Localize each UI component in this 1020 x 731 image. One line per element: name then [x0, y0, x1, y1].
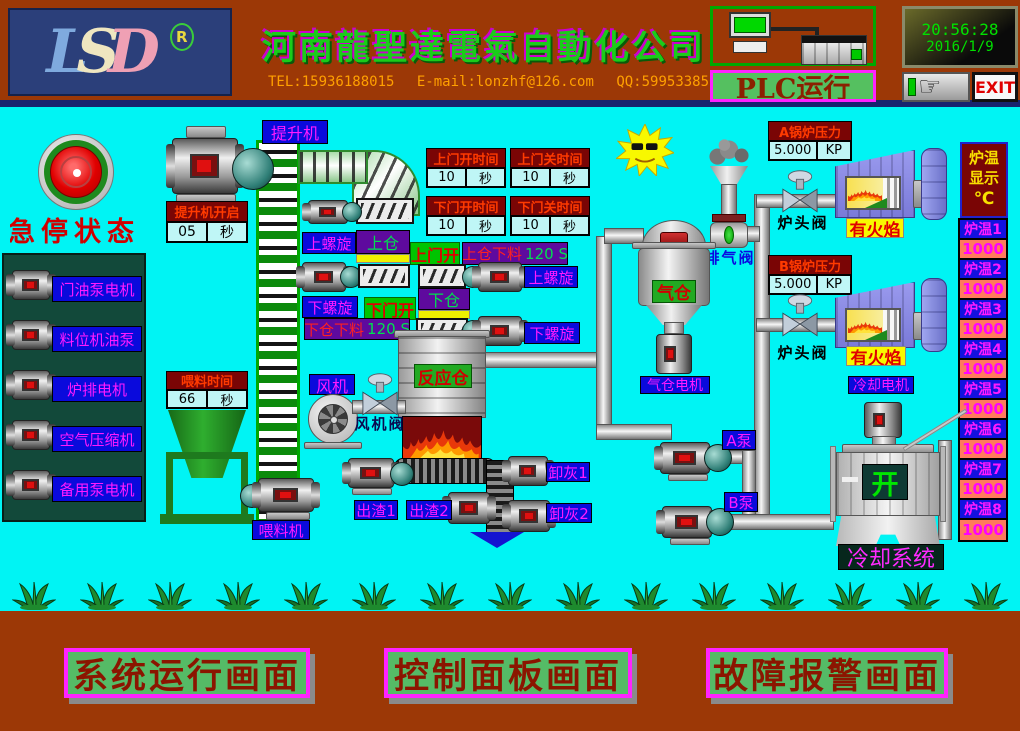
company-name: 河南龍聖達電氣自動化公司: [262, 20, 710, 66]
gas-bin-label: 气仓: [652, 280, 696, 303]
pump-b-base: [670, 538, 710, 545]
logo-panel: L S D R: [8, 8, 232, 96]
grass-icon: [760, 582, 804, 610]
contact-tel: TEL:15936188015: [268, 74, 394, 90]
estop-button[interactable]: [38, 134, 114, 210]
temp-value: 1000: [960, 400, 1006, 420]
pump-b-label: B泵: [724, 492, 758, 512]
pc-plc-link-icon: [710, 6, 876, 66]
temp-value: 1000: [960, 360, 1006, 380]
spare-pump-motor-icon: [12, 470, 50, 500]
upper-screw-motor-right: [478, 262, 522, 292]
boiler-a-head-valve-label: 炉头阀: [774, 214, 832, 231]
clock-date: 2016/1/9: [926, 39, 993, 55]
temp-value: 1000: [960, 440, 1006, 460]
pipe-to-pump-a: [596, 424, 672, 440]
furnace-temp-header: 炉温 显示 ℃: [960, 142, 1008, 218]
exit-button[interactable]: EXIT: [972, 72, 1018, 102]
ash2-motor: [508, 500, 550, 532]
upper-screw-conveyor-1: [358, 264, 410, 288]
gas-motor-icon: [656, 334, 692, 374]
tower-window: 开: [862, 464, 908, 500]
ash2-label: 卸灰2: [546, 503, 592, 523]
feeder-motor-base: [266, 512, 310, 520]
cooling-motor-label: 冷却电机: [848, 376, 914, 394]
plc-rack-icon: [801, 35, 867, 65]
lower-door-open-timer: 下门开时间 10秒: [426, 196, 506, 236]
exhaust-valve-label: 排气阀: [704, 249, 756, 266]
nav-button-fault-alarm[interactable]: 故障报警画面: [706, 648, 948, 698]
grass-icon: [284, 582, 328, 610]
temp-value: 1000: [960, 520, 1006, 540]
lift-timer-title: 提升机开启: [167, 202, 247, 222]
gas-tank-neck: [664, 322, 684, 334]
feeder-label: 喂料机: [252, 520, 310, 540]
boiler-b-head-valve-label: 炉头阀: [774, 344, 832, 361]
temp-value: 1000: [960, 280, 1006, 300]
printer-icon: [733, 41, 767, 53]
boiler-a-flame-status: 有火焰: [846, 218, 904, 238]
feed-timer: 喂料时间 66 秒: [166, 371, 248, 409]
door-oil-pump-motor-icon: [12, 270, 50, 300]
hand-pointer-icon: ☞: [918, 74, 941, 100]
upper-screw-conveyor-2: [418, 264, 466, 288]
grass-icon: [12, 582, 56, 610]
cable-line: [771, 27, 819, 31]
fan-label: 风机: [309, 374, 355, 395]
pump-a-label: A泵: [722, 430, 756, 450]
tower-fan-motor: [864, 402, 902, 438]
mid-conveyor-motor: [448, 492, 490, 524]
fan-base: [304, 442, 362, 449]
grass-icon: [352, 582, 396, 610]
upper-screw-label-left: 上螺旋: [302, 232, 356, 254]
registered-mark-icon: R: [170, 23, 194, 51]
lift-label: 提升机: [262, 120, 328, 144]
feeder-motor: [258, 478, 314, 512]
temp-label: 炉温3: [960, 300, 1006, 320]
reactor-label: 反应仓: [414, 364, 472, 388]
upper-bin-label: 上仓: [356, 230, 410, 254]
sun-icon: [616, 124, 674, 176]
temp-label: 炉温2: [960, 260, 1006, 280]
upper-door-close-timer: 上门关时间 10秒: [510, 148, 590, 188]
pipe-right-main-riser: [754, 194, 770, 518]
motor-button-door-oil-pump[interactable]: 门油泵电机: [52, 276, 142, 302]
boiler-b-flame-status: 有火焰: [846, 346, 906, 366]
lift-timer-unit: 秒: [207, 222, 247, 242]
feeder-frame: [166, 452, 248, 522]
temp-value: 1000: [960, 480, 1006, 500]
feeder-base: [160, 514, 254, 524]
lower-door-open-status: 下门开: [364, 297, 416, 320]
temp-label: 炉温6: [960, 420, 1006, 440]
boiler-a-pressure: A锅炉压力 5.000 KP: [768, 121, 852, 161]
lift-motor: [172, 138, 238, 194]
boiler-b-cylinder: [921, 278, 947, 352]
lift-motor-cap: [186, 126, 226, 138]
grass-icon: [216, 582, 260, 610]
hand-pointer-button[interactable]: ☞: [902, 72, 970, 102]
hmi-screen: L S D R 河南龍聖達電氣自動化公司 TEL:15936188015 E-m…: [0, 0, 1020, 731]
lower-screw-label-right: 下螺旋: [524, 322, 580, 344]
boiler-b-window: [845, 308, 901, 342]
temp-label: 炉温5: [960, 380, 1006, 400]
grass-icon: [420, 582, 464, 610]
boiler-a-pressure-title: A锅炉压力: [769, 122, 851, 141]
air-compressor-motor-icon: [12, 420, 50, 450]
reactor-fire: [402, 416, 482, 462]
ash1-label: 卸灰1: [546, 462, 590, 482]
nav-button-control-panel[interactable]: 控制面板画面: [384, 648, 632, 698]
slag1-label: 出渣1: [354, 500, 398, 520]
contact-line: TEL:15936188015 E-mail:lonzhf@126.com QQ…: [268, 74, 708, 94]
motor-button-level-oil-pump[interactable]: 料位机油泵: [52, 326, 142, 352]
slag-belt-motor-base: [352, 488, 392, 495]
lift-timer-value[interactable]: 05: [167, 222, 207, 242]
tower-dash: [842, 477, 858, 482]
slag-belt-motor: [348, 458, 394, 488]
temp-label: 炉温4: [960, 340, 1006, 360]
tower-frame-right: [940, 446, 946, 522]
upper-bin-level-bar: [356, 254, 410, 263]
boiler-a-pressure-unit: KP: [817, 141, 852, 160]
lift-gearbox: [232, 148, 274, 190]
slag-belt-gear: [390, 462, 414, 486]
boiler-a-pressure-value[interactable]: 5.000: [769, 141, 817, 160]
motor-button-air-compressor[interactable]: 空气压缩机: [52, 426, 142, 452]
grass-icon: [624, 582, 668, 610]
grate-motor-icon: [12, 370, 50, 400]
pipe-reactor-out: [480, 352, 606, 368]
pump-b-head: [706, 508, 734, 536]
nav-button-system-run[interactable]: 系统运行画面: [64, 648, 310, 698]
fan-icon: [308, 394, 358, 444]
top-screw-conveyor: [356, 198, 414, 224]
slag2-label: 出渣2: [406, 500, 452, 520]
clock-time: 20:56:28: [921, 20, 998, 39]
pump-a-motor: [660, 442, 710, 474]
plc-status-button[interactable]: PLC运行: [710, 70, 876, 102]
grass-icon: [828, 582, 872, 610]
boiler-a-cylinder: [921, 148, 947, 220]
exhaust-stem: [721, 184, 737, 216]
motor-button-grate[interactable]: 炉排电机: [52, 376, 142, 402]
boiler-a-head-valve-icon[interactable]: [782, 168, 818, 214]
cooling-system-label: 冷却系统: [838, 544, 944, 570]
motor-button-spare-pump[interactable]: 备用泵电机: [52, 476, 142, 502]
upper-door-open-timer: 上门开时间 10秒: [426, 148, 506, 188]
boiler-b-pressure-title: B锅炉压力: [769, 256, 851, 275]
lower-door-close-timer: 下门关时间 10秒: [510, 196, 590, 236]
boiler-b-pressure: B锅炉压力 5.000 KP: [768, 255, 852, 295]
pump-a-base: [668, 474, 708, 481]
feed-timer-title: 喂料时间: [167, 372, 247, 390]
fan-valve-label: 风机阀: [354, 415, 406, 431]
lower-bin-label: 下仓: [418, 288, 470, 310]
feed-timer-unit: 秒: [207, 390, 247, 408]
contact-email: E-mail:lonzhf@126.com: [417, 74, 594, 90]
grass-icon: [148, 582, 192, 610]
temp-label: 炉温8: [960, 500, 1006, 520]
furnace-temp-list: 炉温1 1000 炉温2 1000 炉温3 1000 炉温4 1000 炉温5 …: [958, 218, 1008, 542]
fan-valve-icon[interactable]: [362, 372, 398, 416]
clock-display: 20:56:28 2016/1/9: [902, 6, 1018, 68]
grass-row: [0, 576, 1020, 610]
logo-letter-d: D: [108, 17, 160, 87]
pump-b-motor: [662, 506, 712, 538]
grass-icon: [964, 582, 1008, 610]
bucket-elevator: [256, 140, 300, 532]
grass-icon: [896, 582, 940, 610]
pipe-gas-left-riser: [596, 236, 612, 440]
monitor-icon: [729, 12, 771, 38]
exhaust-flange: [712, 214, 746, 222]
top-screw-gear: [342, 202, 362, 222]
grass-icon: [692, 582, 736, 610]
smoke-icon: [706, 138, 752, 166]
temp-value: 1000: [960, 240, 1006, 260]
boiler-b-head-valve-icon[interactable]: [782, 292, 818, 338]
feed-timer-value[interactable]: 66: [167, 390, 207, 408]
upper-door-open-status: 上门开: [410, 242, 460, 265]
elevator-duct-horizontal: [298, 150, 368, 184]
estop-label: 急停状态: [10, 214, 138, 244]
gas-motor-label: 气仓电机: [640, 376, 710, 394]
contact-qq: QQ:599533856: [616, 74, 717, 90]
boiler-b-pressure-unit: KP: [817, 275, 852, 294]
level-oil-pump-motor-icon: [12, 320, 50, 350]
temp-value: 1000: [960, 320, 1006, 340]
cooling-status: 开: [872, 463, 899, 502]
lower-screw-label-left: 下螺旋: [302, 296, 358, 318]
grass-icon: [556, 582, 600, 610]
temp-label: 炉温7: [960, 460, 1006, 480]
grass-icon: [80, 582, 124, 610]
temp-label: 炉温1: [960, 220, 1006, 240]
green-indicator: [908, 78, 916, 96]
grass-icon: [488, 582, 532, 610]
lift-timer: 提升机开启 05 秒: [166, 201, 248, 243]
ash1-motor: [508, 456, 548, 486]
upper-screw-label-right: 上螺旋: [524, 266, 578, 288]
boiler-a-window: [845, 176, 901, 210]
